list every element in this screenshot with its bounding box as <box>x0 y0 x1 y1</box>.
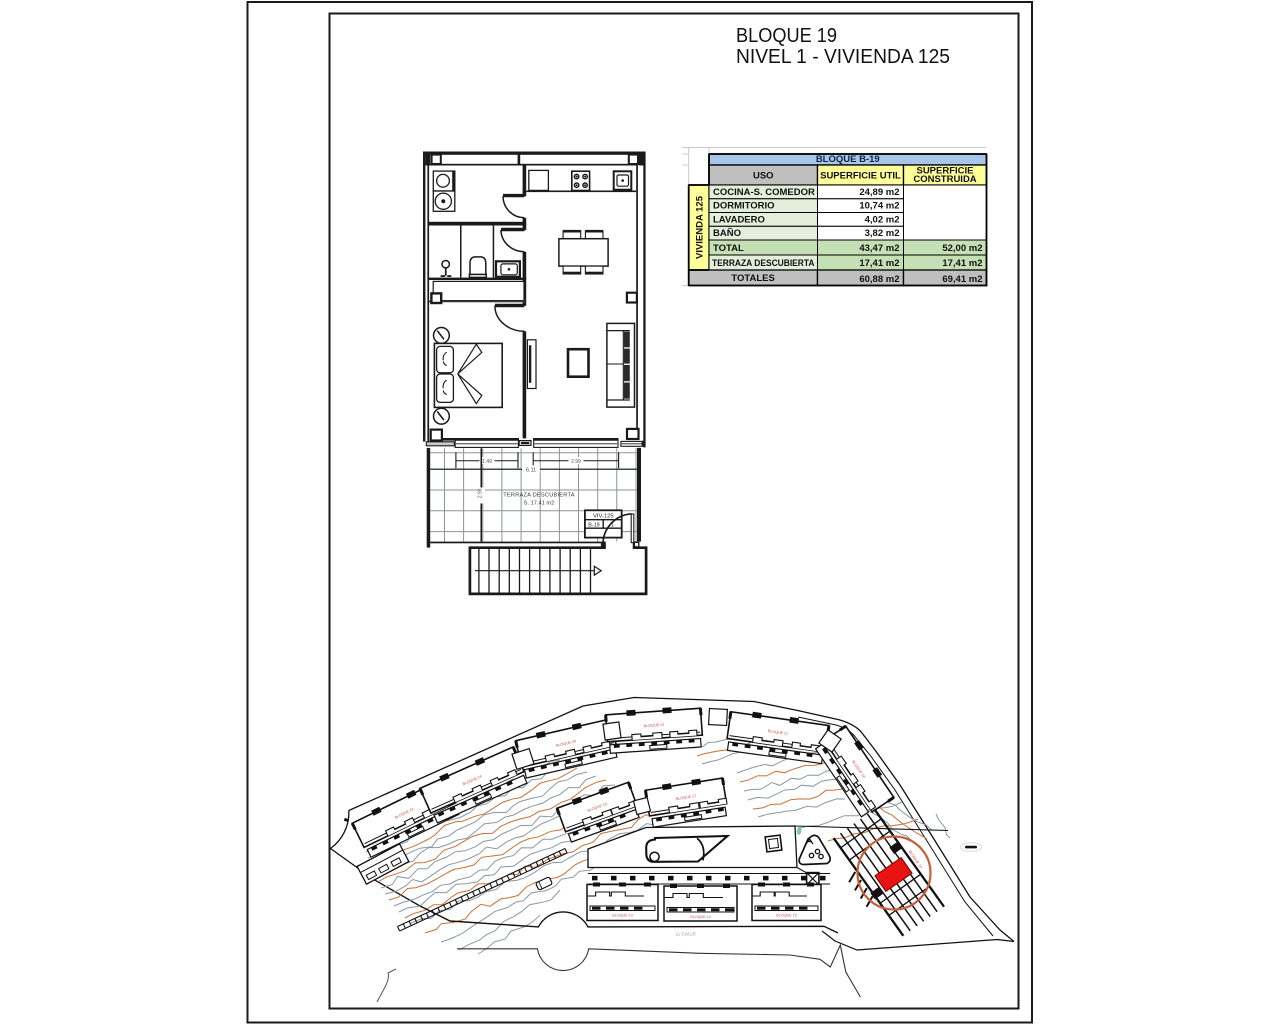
svg-text:60,88 m2: 60,88 m2 <box>859 274 899 285</box>
svg-text:2.98: 2.98 <box>477 488 483 498</box>
svg-text:BLOQUE 14: BLOQUE 14 <box>690 915 711 919</box>
svg-text:17,41 m2: 17,41 m2 <box>859 258 899 269</box>
svg-text:TOTALES: TOTALES <box>731 273 774 284</box>
svg-text:DORMITORIO: DORMITORIO <box>713 201 775 212</box>
svg-text:TERRAZA DESCUBIERTA: TERRAZA DESCUBIERTA <box>503 493 575 499</box>
svg-text:USO: USO <box>753 171 774 182</box>
svg-text:C/ CALLE: C/ CALLE <box>676 931 696 937</box>
svg-text:TERRAZA DESCUBIERTA: TERRAZA DESCUBIERTA <box>712 258 815 269</box>
svg-text:BLOQUE 15: BLOQUE 15 <box>776 914 797 918</box>
svg-text:6.11: 6.11 <box>526 468 536 474</box>
svg-text:10,74 m2: 10,74 m2 <box>859 201 899 212</box>
svg-text:COCINA-S. COMEDOR: COCINA-S. COMEDOR <box>713 187 815 198</box>
svg-text:2.99: 2.99 <box>571 459 581 465</box>
svg-text:NIVEL 1 - VIVIENDA 125: NIVEL 1 - VIVIENDA 125 <box>736 45 950 68</box>
svg-text:17,41 m2: 17,41 m2 <box>942 258 982 269</box>
svg-text:3,82 m2: 3,82 m2 <box>865 228 900 239</box>
svg-text:TOTAL: TOTAL <box>713 243 744 254</box>
svg-text:43,47 m2: 43,47 m2 <box>859 243 899 254</box>
svg-text:VIV-125: VIV-125 <box>593 513 614 519</box>
svg-text:24,89 m2: 24,89 m2 <box>859 187 899 198</box>
svg-text:69,41 m2: 69,41 m2 <box>942 274 982 285</box>
svg-text:LAVADERO: LAVADERO <box>713 215 765 226</box>
svg-text:CONSTRUIDA: CONSTRUIDA <box>913 174 976 185</box>
svg-text:BAÑO: BAÑO <box>713 228 741 239</box>
svg-text:52,00 m2: 52,00 m2 <box>942 243 982 254</box>
svg-text:BLOQUE B-19: BLOQUE B-19 <box>816 154 880 165</box>
svg-text:S. 17.41 m2: S. 17.41 m2 <box>524 501 555 507</box>
svg-text:B-19: B-19 <box>588 522 599 528</box>
svg-text:SUPERFICIE UTIL: SUPERFICIE UTIL <box>820 171 901 182</box>
svg-text:VIVIENDA 125: VIVIENDA 125 <box>694 195 705 259</box>
svg-text:4,02 m2: 4,02 m2 <box>865 215 900 226</box>
svg-text:BLOQUE 13: BLOQUE 13 <box>612 914 633 918</box>
svg-text:BLOQUE 19: BLOQUE 19 <box>736 24 837 47</box>
svg-text:1.49: 1.49 <box>482 459 492 465</box>
